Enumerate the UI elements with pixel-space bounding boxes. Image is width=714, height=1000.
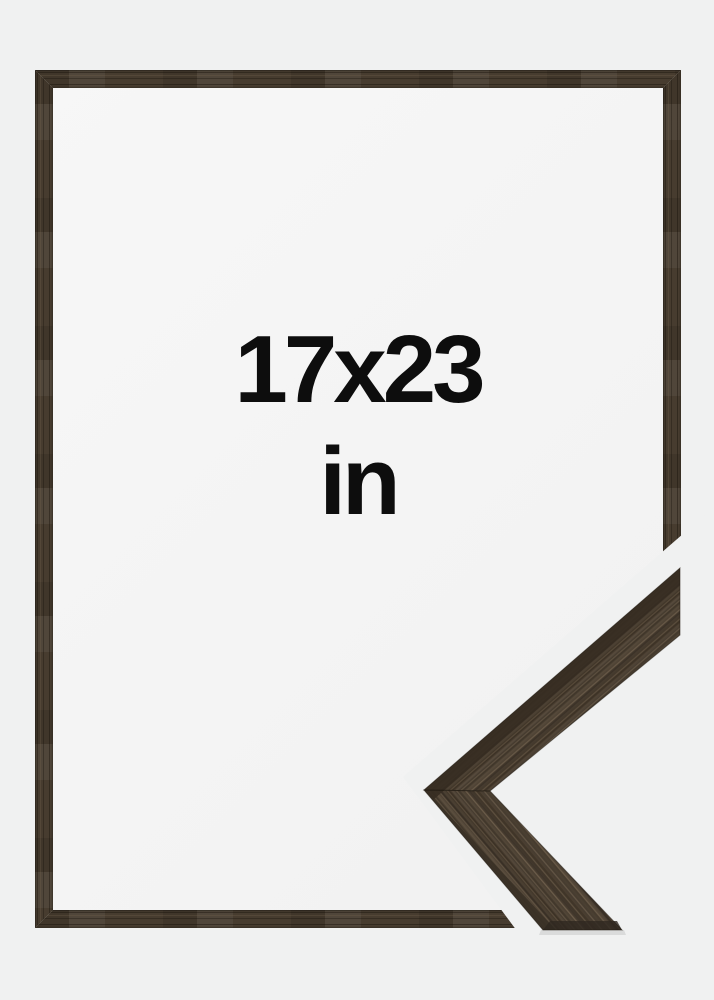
frame-border-top (35, 70, 681, 88)
size-label: 17x23 (35, 314, 681, 426)
corner-shadow (539, 930, 626, 935)
corner-detail-graphic (366, 480, 714, 1000)
corner-bottom-face (543, 921, 622, 930)
product-image: 17x23 in (0, 0, 714, 1000)
